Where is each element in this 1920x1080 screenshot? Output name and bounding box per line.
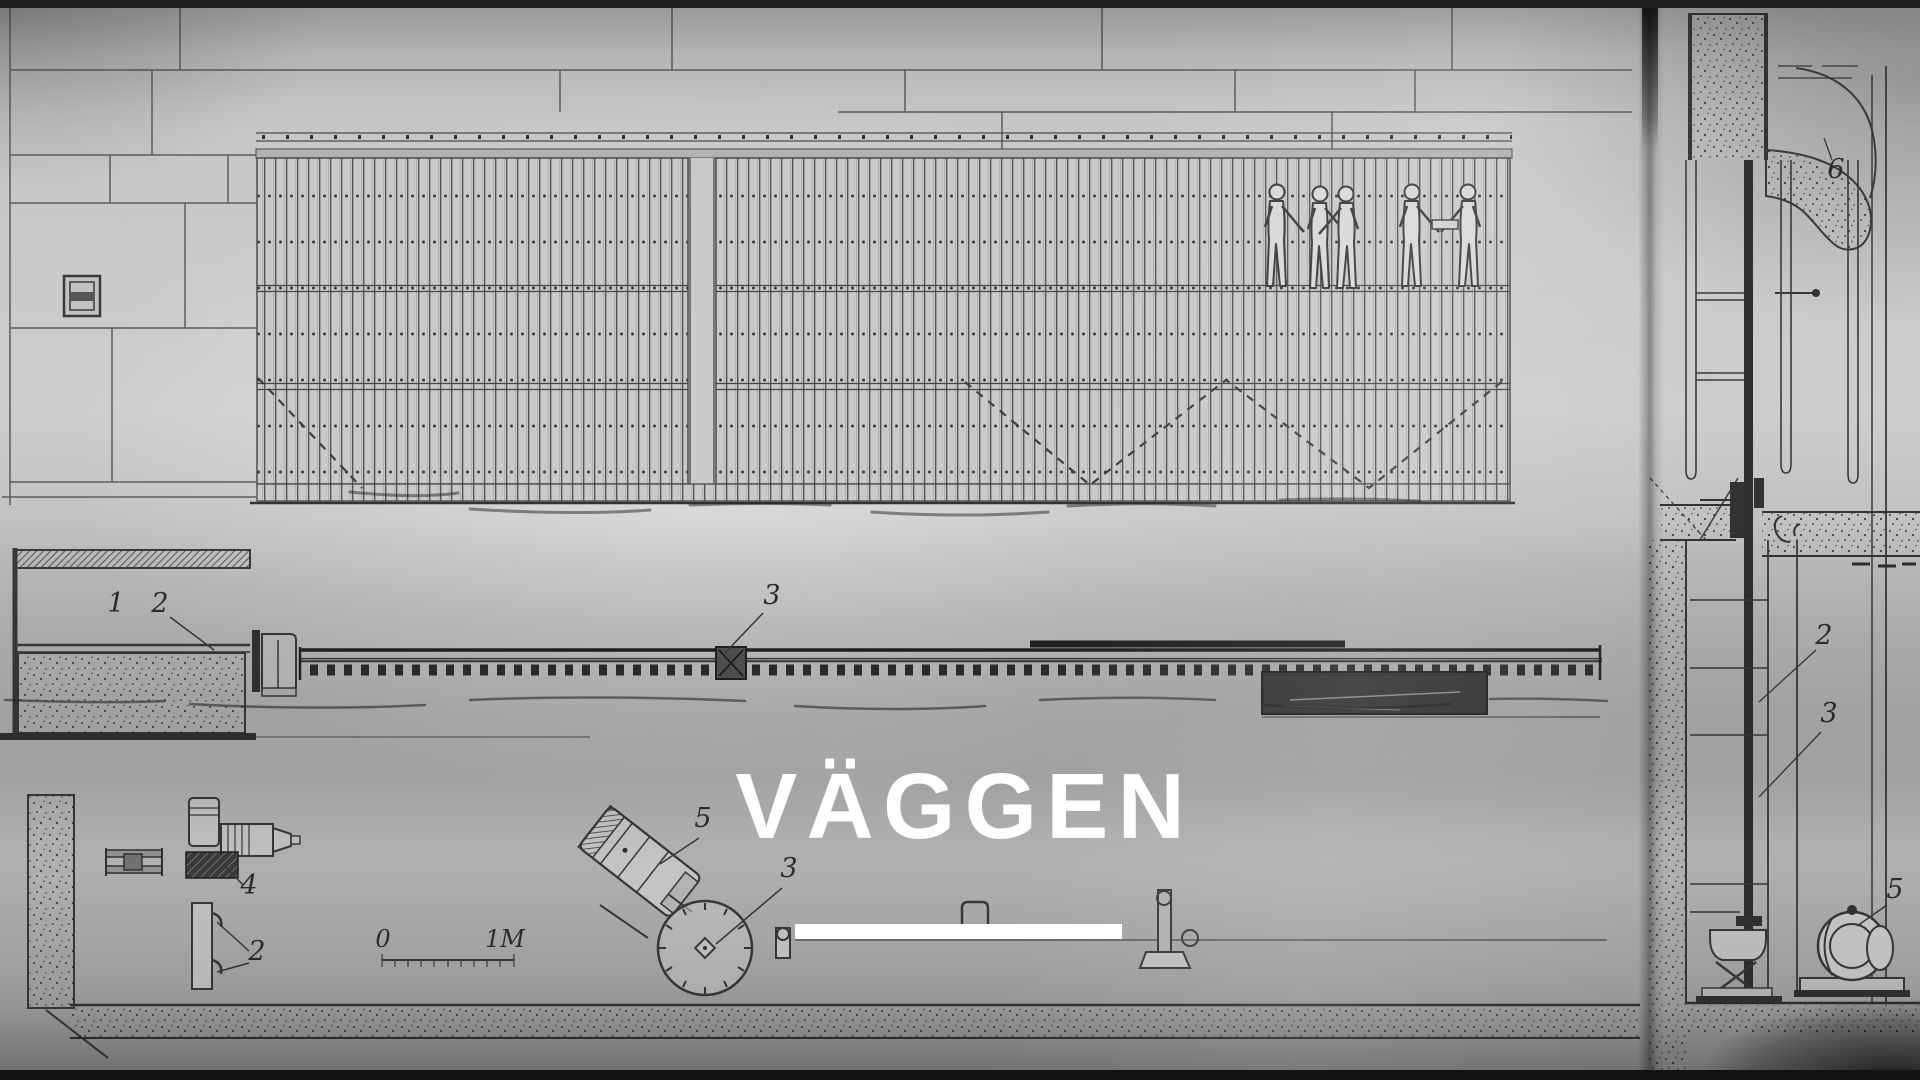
top-letterbox-strip [0,0,1920,8]
drive-motor-plan [186,798,300,878]
gear-motor [578,806,701,918]
callout-2-label: 2 [150,588,168,619]
title-underline [795,924,1122,939]
pit-motor [1794,905,1910,997]
scale-zero-label: 0 [375,925,390,953]
wall-cross-section: 6 [1648,14,1920,1072]
scale-1m-label: 1M [485,925,526,953]
rail-clamp-plan [106,848,162,876]
technical-drawing: 1 2 3 [0,0,1920,1080]
video-frame: 1 2 3 [0,0,1920,1080]
section-wall-rail [1744,160,1753,995]
bottom-letterbox-strip [0,1070,1920,1080]
section-callout-5-label: 5 [1886,874,1903,905]
elevation-callouts: 1 2 3 [107,580,780,653]
callout-6-label: 6 [1827,154,1844,185]
pulley-small [776,928,790,958]
callout-3-label: 3 [763,580,780,611]
callout-2b-label: 2 [247,936,265,967]
callout-5-label: 5 [694,803,711,834]
section-callout-3-label: 3 [1820,698,1837,729]
pulley-block [1140,890,1198,968]
callout-3b-label: 3 [780,853,797,884]
callout-1-label: 1 [107,588,124,619]
scale-bar: 0 1M [375,925,526,967]
plan-machinery-left: 4 2 [106,798,300,989]
rail-support-jack [1696,916,1782,1002]
left-foundation [0,548,590,740]
winch-assembly: 5 3 [578,803,1607,995]
wall-junction-box [64,276,100,316]
section-callout-2-label: 2 [1814,620,1832,651]
callout-4-label: 4 [239,870,257,901]
guide-plate-plan [192,903,221,989]
